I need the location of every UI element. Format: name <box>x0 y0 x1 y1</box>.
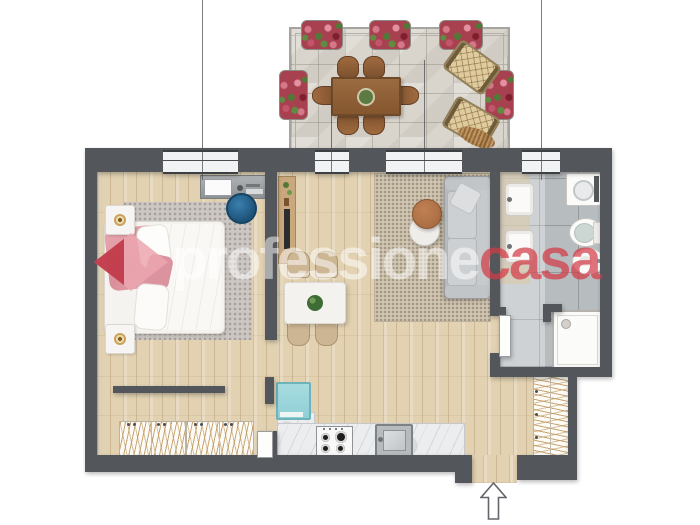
wall-kitchen-stub <box>265 377 274 404</box>
walls-group <box>0 0 700 525</box>
door-center-line-terrace-2 <box>424 60 425 172</box>
wall-bathroom-bottom <box>490 367 612 377</box>
wall-entry-right-block <box>517 455 577 480</box>
wall-bedroom-living <box>265 172 277 340</box>
wall-right-upper <box>600 148 612 377</box>
wall-left <box>85 148 97 472</box>
window-center-line-bathroom <box>541 0 542 180</box>
wall-shower-vertical <box>543 304 551 322</box>
wall-hallway-right <box>568 372 577 458</box>
wall-closet-partition <box>113 386 225 393</box>
entry-arrow-icon <box>480 482 507 520</box>
window-center-line-bedroom <box>202 0 203 180</box>
wall-bottom <box>85 455 462 472</box>
door-center-line-terrace-1 <box>331 95 332 172</box>
wall-entry-step <box>455 455 472 483</box>
floor-plan: professionecasa <box>0 0 700 525</box>
wall-bathroom-left <box>490 172 500 313</box>
bathroom-door-leaf <box>499 315 511 357</box>
terrace-door-1 <box>315 150 349 174</box>
bedroom-window <box>163 150 238 174</box>
closet-door-leaf <box>257 431 273 458</box>
